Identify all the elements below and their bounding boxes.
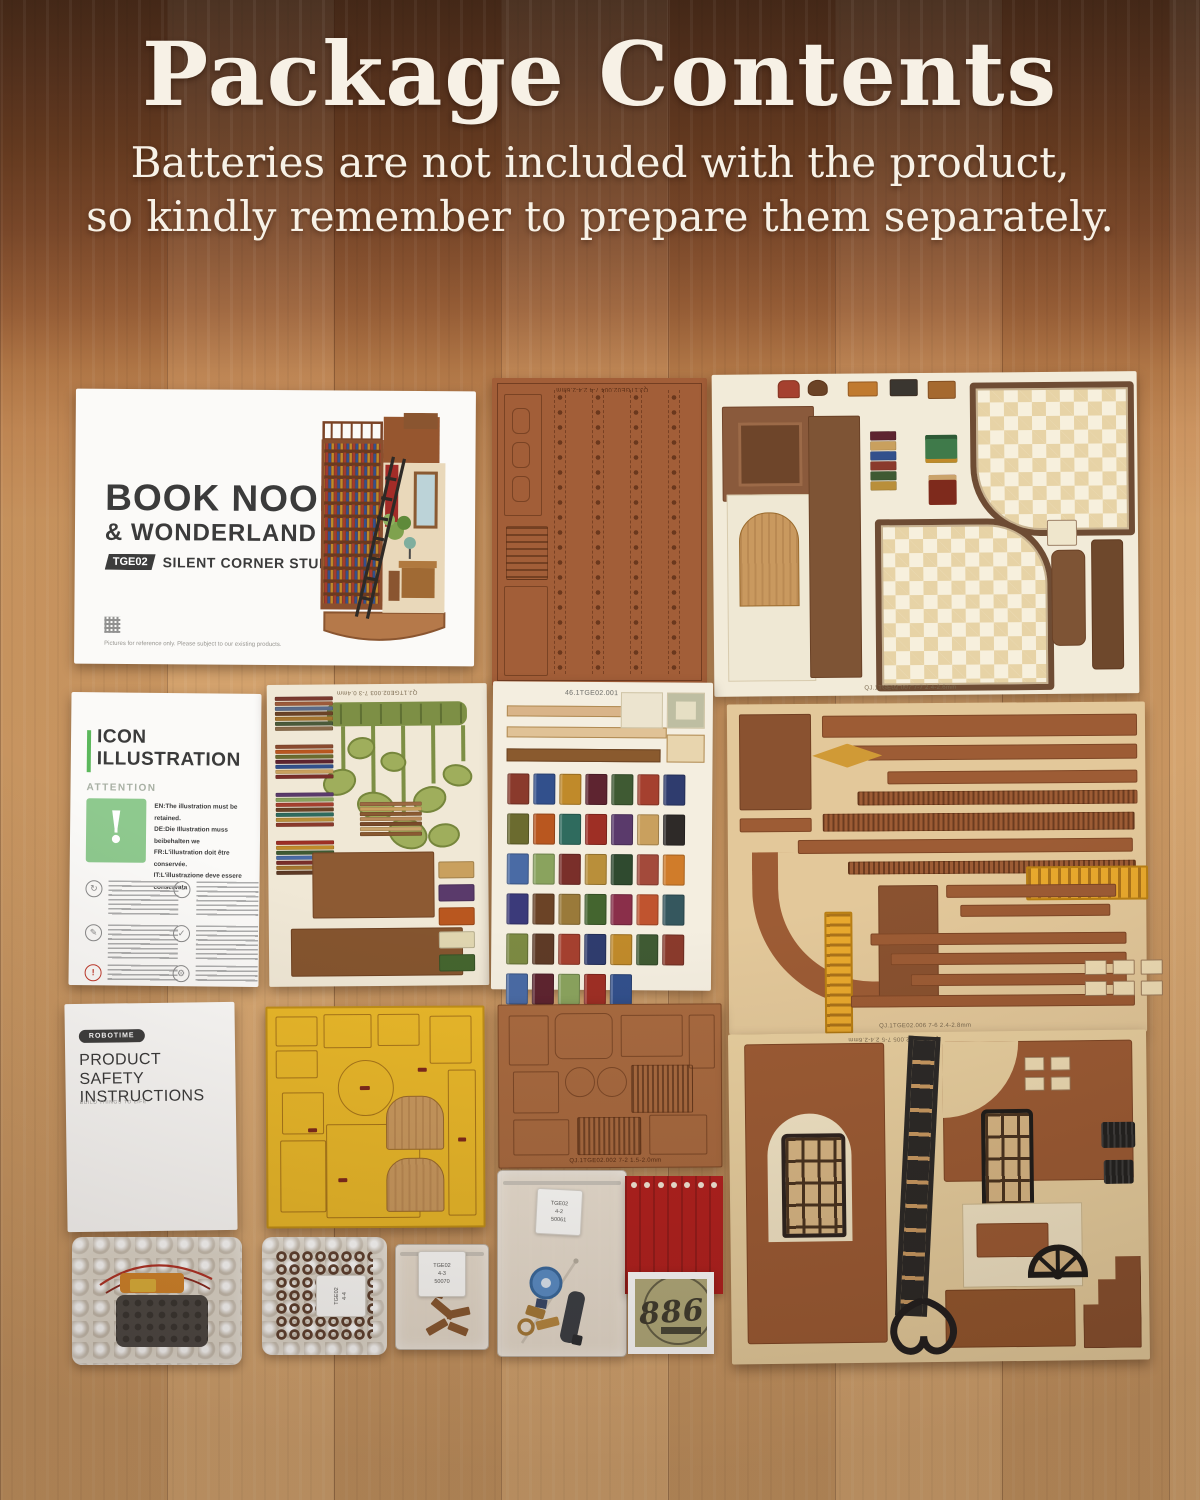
comb-bar-piece [823,812,1135,832]
bag-label-line: 50061 [536,1215,580,1226]
book-cover-sticker [662,934,684,965]
small-outline-piece [1047,520,1077,546]
bag2-label: TGE024-4 [316,1275,366,1317]
wood-grain-panel [312,852,435,919]
cut-sheet-bars: QJ.1TGE02.006 7-6 2.4-2.8mm [727,702,1147,1035]
grommet-hole [671,1182,677,1188]
book-spine [275,716,333,721]
book-spine [360,807,422,812]
printed-sheet-plant: QJ.1TGE02.003 7-3 0.4mm [267,683,490,987]
book-spine [275,749,333,754]
bag-label-line: TGE02 [419,1262,465,1270]
parts-bag-bubble-mixed [72,1237,242,1365]
cell-outline [1050,1056,1070,1070]
cut-outline [513,1071,559,1113]
icon-block-tips: ✎ [85,924,178,959]
bar-piece [946,884,1116,898]
cell-outline [1085,960,1107,975]
qr-code [104,617,120,633]
book-cover-sticker [558,894,580,925]
book-cover-sticker [610,934,632,965]
book-cover-sticker [533,814,555,845]
book-spine [275,721,333,726]
book-stack-1 [275,696,333,732]
sheet-code-label: QJ.1TGE02.004 7-4 2.4-2.6mm [556,386,648,392]
grommet-hole [631,1182,637,1188]
wood-sheet-columns: QJ.1TGE02.004 7-4 2.4-2.6mm [492,378,707,686]
package-contents-photo: Package Contents Batteries are not inclu… [0,0,1200,1500]
bag-label-line: 4-4 [341,1276,349,1316]
book-spine [275,774,333,779]
pencil-icon: ✎ [85,924,102,941]
book-spine [870,471,896,480]
book-spine [275,701,333,706]
glue-icon: ◔ [173,881,190,898]
book-spine [276,845,334,850]
subtitle-line-2: so kindly remember to prepare them separ… [0,190,1200,244]
multilang-text-lines [196,925,258,960]
grommet-hole [658,1182,664,1188]
robotime-brand-pill: ROBOTIME [79,1029,145,1043]
booklet-fine-print: Pictures for reference only. Please subj… [104,641,281,648]
book-cover-sticker [585,854,607,885]
printed-chip [438,861,474,879]
cell-outline [1113,981,1135,996]
small-cell-grid [1085,959,1163,996]
black-window-frame-piece [981,1109,1034,1210]
book-cover-sticker [585,774,607,805]
cut-outline [689,1014,715,1068]
book-cover-sticker [637,814,659,845]
book-cover-sticker [637,774,659,805]
cell-outline [1024,1057,1044,1071]
book-cover-sticker [611,854,633,885]
icon-illustration-sheet: ICON ILLUSTRATION ATTENTION ! EN:The ill… [68,692,261,987]
book-cover-sticker [663,854,685,885]
black-grille-piece [1101,1122,1135,1148]
note-en: EN:The illustration must be retained. [154,801,256,825]
book-spine [871,481,897,490]
book-spine [870,461,896,470]
bag-label-line: 50070 [419,1278,465,1286]
arch-wheel-piece [1026,1204,1089,1281]
mini-books-strip [870,431,897,501]
book-cover-sticker [507,773,529,804]
grommet-hole [698,1182,704,1188]
grommet-hole [711,1182,717,1188]
attention-exclamation-box: ! [86,798,147,863]
icon-block-perspective: ↻ [85,880,178,917]
cell-outline [1141,959,1163,974]
booklet-title-line2: & WONDERLAND [105,519,317,548]
book-spine [275,706,333,711]
red-exclamation-icon: ! [85,964,102,981]
comb-bar-piece [857,790,1137,806]
book-cover-sticker [584,934,606,965]
hanging-plant-pieces [317,695,483,866]
zip-seal [503,1181,621,1185]
book-cover-sticker [584,974,606,1005]
icon-sheet-title-1: ICON [97,726,147,749]
safety-tagline: BUILD THINGS TO LIFE [80,1099,147,1106]
book-cover-sticker [558,974,580,1005]
cut-outline [377,1014,419,1046]
parts-bag-bubble-rings: TGE024-4 [262,1237,387,1355]
page-subtitle: Batteries are not included with the prod… [0,136,1200,244]
book-spine [275,744,333,749]
side-chip-column [438,861,479,971]
book-cover-sticker [507,813,529,844]
plank-strip-piece [808,416,862,678]
green-accent-bar [87,730,91,772]
book-spine [360,812,422,817]
cell-outline [1025,1077,1045,1091]
rug-sticker-piece [667,734,705,762]
bar-piece [960,904,1110,917]
model-badge: TGE02 [105,554,156,570]
bag-label-line: 4-3 [419,1270,465,1278]
page-title: Package Contents [0,22,1200,126]
book-cover-sticker [637,854,659,885]
booklet-subtitle-row: TGE02 SILENT CORNER STUDY [105,554,340,572]
multilang-text-lines [196,965,258,982]
book-cover-sticker [559,814,581,845]
multilang-text-lines [108,880,178,917]
etched-column [668,390,680,674]
window-lattice-piece [781,1133,846,1238]
stamp-banner [661,1327,701,1334]
instruction-booklet: BOOK NOOK & WONDERLAND TGE02 SILENT CORN… [74,389,476,667]
multilang-text-lines [108,924,178,959]
book-cover-sticker [507,853,529,884]
ladder-piece [895,1036,941,1317]
book-cover-sticker [506,973,528,1004]
stamp-sticker-886: 886 [628,1272,714,1354]
sticker-inner: 886 [635,1279,707,1347]
comb-cut-piece [577,1117,641,1155]
book-cover-sticker [636,934,658,965]
parts-bag-wood-fittings: TGE024-350070 [395,1244,489,1350]
book-spine [870,451,896,460]
cut-outline [509,1015,549,1065]
etched-column [554,390,566,674]
icon-block-check: ✓ [173,925,258,960]
book-cover-sticker [533,854,555,885]
stamp-piece [621,692,663,728]
book-stack-3 [276,792,334,828]
cut-outline [275,1016,317,1046]
book-spine [276,792,334,797]
book-spine [360,817,422,822]
etched-piece-outline [512,408,530,434]
printed-sheet-tile-floor: QJ.1TGE02.007 7-7 2.4-2.6mm [712,371,1140,697]
book-cover-sticker [663,814,685,845]
shutter-piece [928,381,956,399]
small-cell-grid [1024,1056,1070,1091]
book-cover-sticker [558,934,580,965]
printed-chip [438,884,474,902]
arch-cutout-window [386,1158,444,1212]
mini-frame-piece [890,379,918,396]
yellow-cut-sheet [265,1005,485,1228]
book-spine [275,759,333,764]
book-cover-sticker [611,774,633,805]
long-bar-piece [842,744,1137,761]
book-cover-sticker [663,774,685,805]
cut-outline [280,1140,326,1212]
book-cover-sticker [610,974,632,1005]
etched-comb-piece [506,526,548,580]
sheet-code-label: QJ.1TGE02.002 7-2 1.5-2.0mm [569,1158,661,1164]
book-cover-sticker [662,894,684,925]
cell-outline [1141,980,1163,995]
book-spine [275,754,333,759]
sheet-code-label: QJ.1TGE02.006 7-6 2.4-2.8mm [879,1023,971,1030]
tile-floor-piece-lower [875,518,1054,692]
book-cover-sticker [611,814,633,845]
book-spine [275,711,333,716]
black-grille-piece [1104,1160,1134,1184]
printed-chip [439,954,475,972]
multilang-text-lines [108,964,178,981]
book-spine [276,822,334,827]
book-cover-sticker [559,854,581,885]
multilang-text-lines [196,881,258,918]
book-spine [360,822,422,827]
trim-strip-piece [507,748,661,762]
cut-outline [513,1119,569,1155]
cut-outline [621,1015,683,1057]
gold-railing-vertical [824,912,853,1034]
subtitle-line-1: Batteries are not included with the prod… [0,136,1200,190]
etched-piece-outline [512,442,530,468]
book-spine [275,764,333,769]
book-cover-sticker [532,894,554,925]
book-stack-2 [275,744,333,780]
cut-outline [323,1014,371,1048]
lattice-block-piece [739,714,812,811]
cell-outline [1051,1076,1071,1090]
book-cover-sticker [584,894,606,925]
book-cover-sticker-sheet: 46.1TGE02.001 [491,681,713,991]
cell-outline [1085,981,1107,996]
cut-outline [649,1114,707,1154]
dark-wood-piece [1091,539,1124,669]
tile-floor-piece-upper [970,381,1135,536]
bag4-label: TGE024-250061 [535,1188,583,1236]
arch-wood-cutout [739,512,800,607]
book-cover-sticker [585,814,607,845]
mini-figure-piece [808,380,828,396]
note-de: DE:Die Illustration muss beibehalten we [154,824,256,848]
book-sticker-grid [504,771,703,982]
book-spine [275,726,333,731]
perspective-icon: ↻ [85,880,102,897]
bag4-contents [506,1243,618,1351]
note-fr: FR:L'illustration doit être conservée. [154,847,256,871]
book-nook-illustration [306,412,463,653]
panel-recess [738,422,803,487]
gears-icon: ⚙ [173,965,190,982]
book-spine [360,802,422,807]
parts-bag-metal-light: TGE024-250061 [497,1170,627,1357]
pine-stamp-piece [667,692,705,728]
book-spine [276,802,334,807]
cut-circle-outline [597,1067,627,1097]
curtain-grommet-row [631,1182,717,1188]
sheet-code-label: QJ.1TGE02.003 7-3 0.4mm [337,689,418,696]
book-cover-sticker [636,894,658,925]
long-bar-piece [887,770,1137,785]
grommet-hole [644,1182,650,1188]
book-cover-sticker [610,894,632,925]
etched-piece-outline [512,476,530,502]
printed-chip [439,908,475,926]
sheet-code-label: QJ.1TGE02.007 7-7 2.4-2.6mm [864,685,956,692]
bar-piece [870,932,1126,946]
sheet-code-label: 46.1TGE02.001 [565,690,618,697]
etched-column [630,390,642,674]
check-icon: ✓ [173,925,190,942]
cut-outline [282,1092,324,1134]
wood-grain-panel-long [291,927,463,976]
book-spine [276,797,334,802]
tiger-rug-piece [848,381,878,396]
long-bar-piece [822,714,1137,738]
bag-label-line: TGE02 [333,1276,341,1316]
book-stack-5 [360,802,422,838]
book-cover-sticker [506,933,528,964]
cell-outline [1113,960,1135,975]
cut-sheet-walls-ladder: QJ.1TGE02.005 7-5 2.4-2.6mm [728,1029,1150,1364]
book-spine [360,827,422,832]
book-cover-sticker [506,893,528,924]
cut-outline [276,1050,318,1078]
book-spine [276,840,334,845]
dark-wood-piece [1051,550,1086,646]
small-brown-cut-sheet: QJ.1TGE02.002 7-2 1.5-2.0mm [498,1003,723,1168]
book-spine [276,812,334,817]
icon-block-glue: ◔ [173,881,258,918]
book-cover-sticker [559,774,581,805]
bag1-contents [72,1237,242,1365]
etched-column [592,390,604,674]
icon-block-special: ! [85,964,178,982]
book-spine [275,769,333,774]
safety-title-1: PRODUCT [79,1051,161,1070]
grommet-hole [684,1182,690,1188]
mini-clock-piece [778,380,800,398]
bar-piece [740,818,812,833]
book-cover-sticker [532,974,554,1005]
icon-block-gears: ⚙ [173,965,258,983]
icon-sheet-title-2: ILLUSTRATION [97,748,241,772]
ladder-scroll-foot [877,1298,970,1361]
book-spine [870,441,896,450]
book-spine [275,696,333,701]
attention-label: ATTENTION [86,782,156,794]
safety-instructions-sheet: ROBOTIME PRODUCT SAFETY INSTRUCTIONS BUI… [64,1002,237,1232]
bag3-label: TGE024-350070 [418,1251,466,1297]
cut-outline [448,1069,477,1215]
book-spine [276,817,334,822]
book-spine [276,807,334,812]
arch-cutout-window [386,1096,444,1150]
etched-piece-outline [504,586,548,676]
cut-outline [429,1015,471,1063]
book-spine [870,431,896,440]
mini-plant-piece [925,435,957,463]
cut-outline [555,1013,613,1059]
cut-circle-outline [565,1067,595,1097]
mini-red-book-piece [928,475,956,505]
stairs-silhouette-piece [1083,1244,1142,1349]
comb-cut-piece [631,1065,693,1113]
book-spine [360,832,422,837]
book-cover-sticker [533,774,555,805]
printed-chip [439,931,475,949]
book-cover-sticker [532,934,554,965]
